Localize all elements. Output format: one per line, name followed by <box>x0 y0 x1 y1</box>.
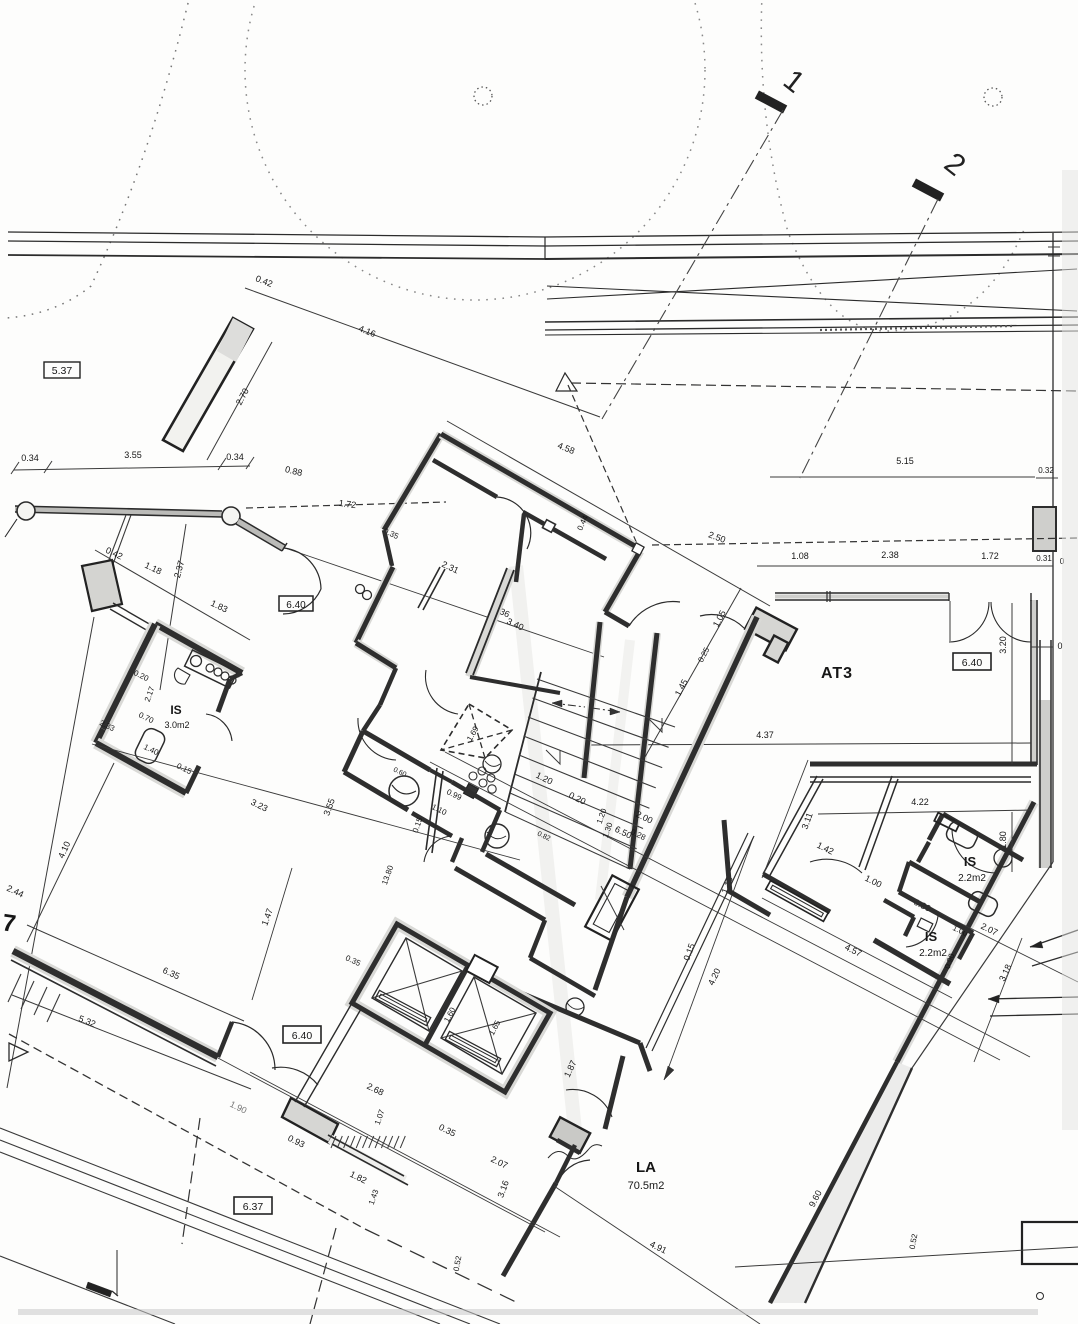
svg-text:0.31: 0.31 <box>1036 554 1052 563</box>
svg-text:IS: IS <box>925 929 938 944</box>
svg-text:6.40: 6.40 <box>292 1030 313 1042</box>
svg-text:3.0m2: 3.0m2 <box>164 720 189 730</box>
svg-text:LA: LA <box>636 1159 656 1176</box>
svg-text:6.40: 6.40 <box>286 600 306 611</box>
svg-text:5.15: 5.15 <box>896 456 914 466</box>
svg-text:3.20: 3.20 <box>998 636 1008 654</box>
svg-text:0.34: 0.34 <box>226 452 244 462</box>
svg-text:5.37: 5.37 <box>52 365 73 377</box>
svg-text:2.2m2: 2.2m2 <box>958 873 986 884</box>
svg-text:IS: IS <box>170 703 181 717</box>
svg-text:70.5m2: 70.5m2 <box>628 1180 665 1192</box>
svg-text:2.2m2: 2.2m2 <box>919 948 947 959</box>
svg-text:0.34: 0.34 <box>21 453 39 463</box>
svg-text:0: 0 <box>1057 641 1062 651</box>
svg-text:6.37: 6.37 <box>243 1201 264 1213</box>
svg-text:0.32: 0.32 <box>1038 466 1054 475</box>
svg-text:AT3: AT3 <box>821 665 853 682</box>
svg-text:4.22: 4.22 <box>911 797 929 807</box>
svg-text:4.37: 4.37 <box>756 730 774 740</box>
svg-text:2.38: 2.38 <box>881 550 899 560</box>
svg-text:6.40: 6.40 <box>962 657 983 669</box>
svg-text:1.08: 1.08 <box>791 551 809 561</box>
svg-text:IS: IS <box>964 854 977 869</box>
svg-text:1.72: 1.72 <box>981 551 999 561</box>
svg-text:3.55: 3.55 <box>124 450 142 460</box>
